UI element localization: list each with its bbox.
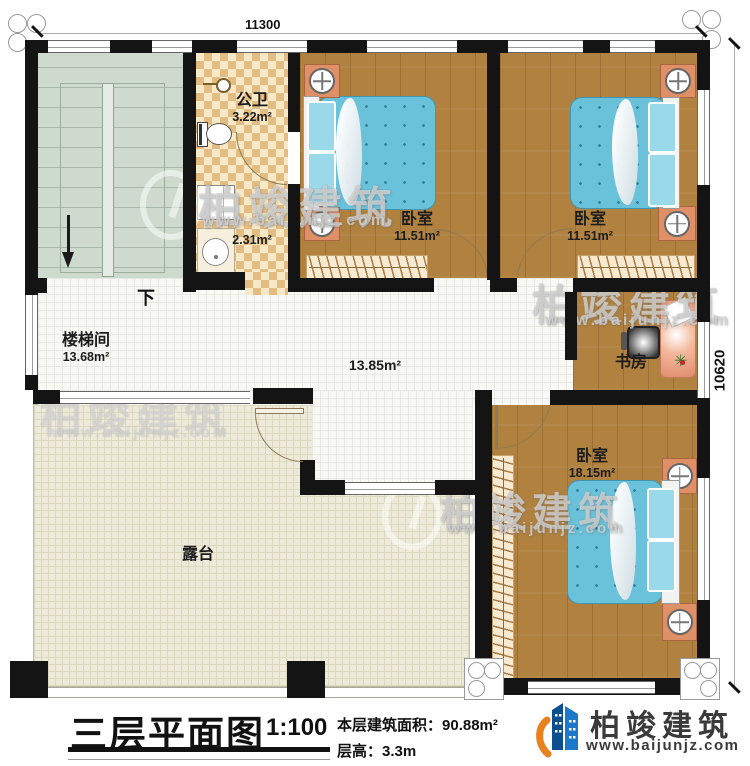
room-name: 公卫 — [212, 92, 292, 110]
stairwell-label: 楼梯间 13.68m² — [40, 332, 132, 364]
porch-column-ornament — [464, 658, 504, 700]
window — [508, 40, 583, 53]
room-name: 露台 — [160, 546, 236, 564]
lamp-icon — [667, 609, 693, 635]
nightstand — [660, 64, 696, 98]
stair-arrow-head — [62, 252, 74, 268]
hallway-nook — [312, 390, 473, 482]
terrace-label: 露台 — [160, 546, 236, 564]
window — [697, 90, 710, 185]
wall — [288, 278, 434, 292]
nightstand — [662, 603, 697, 641]
room-area: 3.22m² — [212, 110, 292, 124]
window — [697, 478, 710, 600]
lamp-icon — [309, 68, 335, 94]
wall — [253, 388, 313, 404]
shower-head-icon — [216, 78, 231, 93]
wall — [33, 390, 60, 404]
room-area: 13.68m² — [40, 350, 132, 364]
window — [60, 391, 250, 404]
top-dimension-line — [38, 33, 705, 34]
floor-plan-canvas: 11300 10620 下 公卫 3.22m² 2.31m² — [0, 0, 750, 766]
wall — [288, 184, 300, 292]
wall — [300, 480, 345, 495]
room-bedroom2: 卧室 11.51m² — [500, 53, 697, 278]
wall — [565, 292, 577, 360]
wall — [490, 278, 517, 292]
window — [697, 322, 710, 398]
room-area: 13.85m² — [330, 358, 420, 374]
floor-height-value: 3.3m — [382, 743, 416, 760]
pillow — [648, 153, 677, 207]
nightstand — [658, 206, 696, 241]
room-name: 卧室 — [548, 448, 636, 466]
bedroom3-label: 卧室 18.15m² — [548, 448, 636, 480]
terrace-column — [10, 661, 48, 698]
brand-logo-icon — [536, 696, 586, 758]
room-name: 书房 — [601, 354, 661, 372]
wall — [435, 480, 475, 495]
window — [152, 40, 192, 53]
room-area: 18.15m² — [548, 466, 636, 480]
room-bedroom1: 卧室 11.51m² — [300, 53, 487, 278]
window — [48, 40, 110, 53]
room-name: 卧室 — [550, 211, 630, 229]
floor-height-label: 层高： — [337, 743, 382, 760]
room-stairwell — [38, 53, 183, 278]
room-name: 楼梯间 — [40, 332, 132, 350]
hallway-area-label: 13.85m² — [330, 358, 420, 374]
wall — [288, 53, 300, 132]
right-dimension-label: 10620 — [711, 348, 728, 394]
watermark-url-text: www.baijunjz.com — [52, 424, 229, 441]
floor-height-line: 层高：3.3m — [337, 740, 416, 761]
wardrobe — [306, 255, 428, 279]
window — [237, 40, 307, 53]
bathroom-threshold — [245, 272, 288, 295]
lamp-icon — [664, 211, 690, 237]
terrace-column — [287, 661, 325, 698]
window — [610, 40, 655, 53]
window — [345, 482, 435, 495]
floor-area-value: 90.88m² — [442, 717, 498, 734]
window — [528, 681, 655, 694]
title-underline-thin — [68, 759, 330, 760]
pillow — [647, 488, 676, 540]
stair-railing — [102, 83, 114, 277]
pillow — [307, 101, 336, 152]
wall — [183, 272, 245, 290]
wall — [550, 390, 710, 405]
plant-icon: ✳ — [674, 354, 687, 370]
wall — [475, 390, 492, 693]
window — [367, 40, 457, 53]
wall — [487, 53, 500, 280]
nightstand — [304, 64, 340, 98]
stair-down-label: 下 — [137, 284, 155, 310]
brand-website: www.baijunjz.com — [586, 737, 739, 754]
wall — [183, 53, 196, 292]
porch-column-ornament — [680, 658, 720, 700]
terrace-railing — [33, 687, 468, 698]
pillow — [648, 102, 677, 153]
title-underline — [68, 747, 330, 752]
wall — [25, 278, 47, 293]
lamp-icon — [665, 68, 691, 94]
bedroom1-door-arc — [434, 229, 488, 280]
pillow — [647, 540, 676, 592]
right-dimension-line — [734, 45, 735, 690]
window — [25, 295, 38, 375]
bathroom-label: 公卫 3.22m² — [212, 92, 292, 124]
top-dimension-label: 11300 — [243, 17, 282, 32]
study-label: 书房 — [601, 354, 661, 372]
floor-area-line: 本层建筑面积：90.88m² — [337, 714, 498, 735]
wall — [573, 278, 710, 292]
stair-direction-arrow — [67, 215, 70, 253]
toilet-bowl-icon — [206, 123, 232, 145]
floor-area-label: 本层建筑面积： — [337, 717, 442, 734]
plan-scale: 1:100 — [266, 714, 327, 742]
